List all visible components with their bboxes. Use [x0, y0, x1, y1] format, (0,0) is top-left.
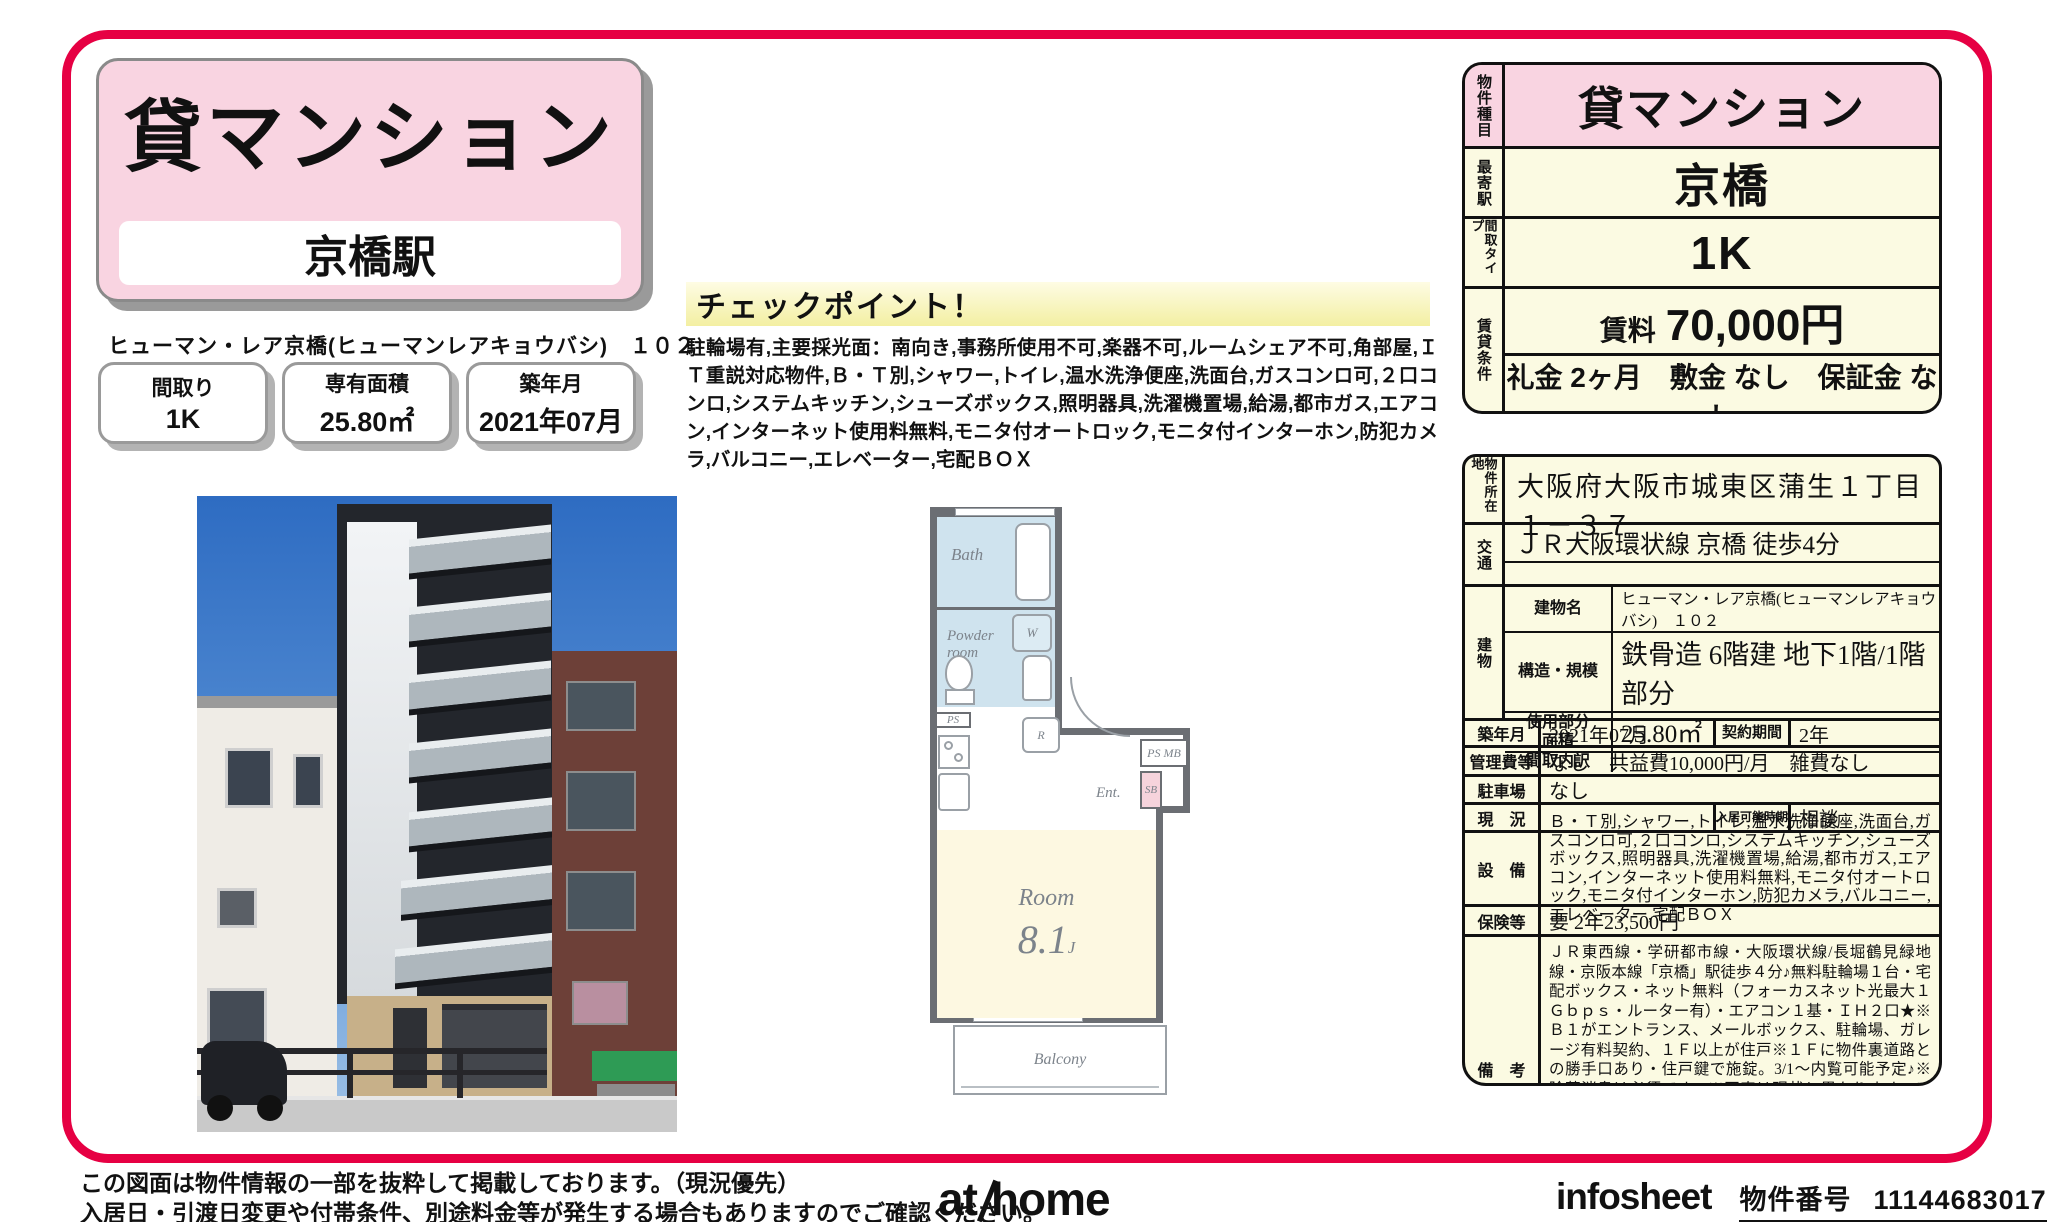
row-layout-type: 間取タイプ 1K: [1465, 219, 1939, 289]
row-notes: 備 考 ＪＲ東西線・学研都市線・大阪環状線/長堀鶴見緑地線・京阪本線「京橋」駅徒…: [1465, 937, 1939, 1086]
stat-box-layout: 間取り 1K: [98, 362, 268, 444]
plan-wall: [1156, 806, 1163, 1023]
title-card: 貸マンション 京橋駅: [96, 58, 644, 302]
ps-label: PS: [947, 714, 959, 726]
stat-box-area: 専有面積 25.80㎡: [282, 362, 452, 444]
stat-value: 1K: [166, 404, 201, 435]
stat-label: 築年月: [520, 368, 583, 398]
building-label: 建物: [1465, 587, 1505, 718]
infosheet-wordmark: infosheet: [1556, 1176, 1711, 1218]
layout-type-label: 間取タイプ: [1465, 219, 1505, 286]
athome-logo: athome: [938, 1172, 1110, 1222]
fence-post: [457, 1048, 463, 1098]
access-label: 交通: [1465, 525, 1505, 584]
management-fee-value: なし 共益費10,000円/月 雑費なし: [1541, 748, 1939, 774]
built-value: 2021年07月: [1541, 721, 1713, 745]
property-number-label: 物件番号: [1739, 1185, 1851, 1215]
infosheet-page: 貸マンション 京橋駅 ヒューマン・レア京橋(ヒューマンレアキョウバシ) １０２ …: [0, 0, 2056, 1222]
bathtub: [1015, 523, 1051, 601]
row-access: 交通 ＪＲ大阪環状線 京橋 徒歩4分: [1465, 525, 1939, 587]
station-value: 京橋: [1505, 150, 1939, 216]
rent-label: 賃料: [1600, 315, 1656, 346]
main-building-side-wall: [347, 522, 417, 1002]
property-type-label: 物件種目: [1465, 65, 1505, 146]
layout-type-value: 1K: [1505, 226, 1939, 280]
checkpoint-header: チェックポイント！: [686, 282, 1430, 326]
athome-logo-home: home: [991, 1172, 1110, 1222]
property-number-value: 11144683017: [1873, 1185, 2046, 1215]
bath-label: Bath: [951, 545, 983, 565]
access-line1: ＪＲ大阪環状線 京橋 徒歩4分: [1505, 525, 1939, 563]
current-status-label: 現 況: [1465, 805, 1541, 830]
room-size: 8.1: [1018, 917, 1068, 962]
building-name-label: 建物名: [1505, 587, 1613, 631]
row-address: 物件所在地 大阪府大阪市城東区蒲生１丁目 １－３７: [1465, 457, 1939, 525]
equipment-label: 設 備: [1465, 833, 1541, 904]
refrigerator-space: R: [1022, 717, 1060, 753]
access-line2: [1505, 563, 1939, 584]
shoe-box: SB: [1140, 771, 1162, 809]
plan-balcony: Balcony: [953, 1025, 1167, 1095]
structure-row: 構造・規模 鉄骨造 6階建 地下1階/1階部分: [1505, 633, 1939, 713]
property-category-title: 貸マンション: [99, 75, 641, 187]
room-label: Room: [1019, 885, 1075, 912]
rent-line: 賃料70,000円: [1505, 289, 1939, 353]
stat-label: 専有面積: [325, 368, 409, 398]
building-name-heading: ヒューマン・レア京橋(ヒューマンレアキョウバシ) １０２: [108, 330, 708, 360]
notes-label: 備 考: [1465, 937, 1541, 1086]
row-built: 築年月 2021年07月 契約期間 2年: [1465, 721, 1939, 748]
plan-main-room: Room 8.1J: [937, 830, 1156, 1018]
disclaimer-line2: 入居日・引渡日変更や付帯条件、別途料金等が発生する場合もありますのでご確認くださ…: [80, 1198, 1046, 1222]
closet-w: W: [1012, 614, 1052, 652]
notes-value: ＪＲ東西線・学研都市線・大阪環状線/長堀鶴見緑地線・京阪本線「京橋」駅徒歩４分♪…: [1541, 937, 1939, 1086]
fence-post: [347, 1048, 353, 1098]
row-property-type: 物件種目 貸マンション: [1465, 65, 1939, 149]
stat-boxes: 間取り 1K 専有面積 25.80㎡ 築年月 2021年07月: [98, 362, 636, 444]
plan-wall: [1055, 507, 1062, 735]
structure-value: 鉄骨造 6階建 地下1階/1階部分: [1613, 633, 1939, 711]
plan-window: [955, 508, 1055, 516]
row-station: 最寄駅 京橋: [1465, 149, 1939, 219]
address-label: 物件所在地: [1465, 457, 1505, 522]
row-insurance: 保険等 要 2年23,500円: [1465, 907, 1939, 937]
plan-wall: [930, 507, 937, 1023]
psmb-label: PS MB: [1147, 746, 1181, 761]
built-label: 築年月: [1465, 721, 1541, 745]
stat-box-built: 築年月 2021年07月: [466, 362, 636, 444]
insurance-value: 要 2年23,500円: [1541, 907, 1939, 934]
athome-logo-at: at: [938, 1172, 977, 1222]
stat-label: 間取り: [152, 372, 215, 402]
rental-terms-label: 賃貸条件: [1465, 289, 1505, 411]
row-equipment: 設 備 Ｂ・Ｔ別,シャワー,トイレ,温水洗浄便座,洗面台,ガスコンロ可,２口コン…: [1465, 833, 1939, 907]
row-management-fee: 管理費等 なし 共益費10,000円/月 雑費なし: [1465, 748, 1939, 777]
station-label: 最寄駅: [1465, 149, 1505, 216]
shop-awning: [592, 1051, 677, 1081]
motorcycle: [201, 1041, 287, 1105]
contract-value: 2年: [1791, 721, 1939, 745]
entrance-label: Ent.: [1096, 785, 1121, 802]
closet-label: W: [1027, 625, 1038, 641]
footer-disclaimer: この図面は物件情報の一部を抜粋して掲載しております。（現況優先） 入居日・引渡日…: [80, 1168, 1046, 1222]
building-photo: [197, 496, 677, 1132]
equipment-value: Ｂ・Ｔ別,シャワー,トイレ,温水洗浄便座,洗面台,ガスコンロ可,２口コンロ,シス…: [1541, 833, 1939, 904]
rent-value: 70,000円: [1666, 301, 1845, 350]
room-size-unit: J: [1068, 938, 1076, 957]
address-value: 大阪府大阪市城東区蒲生１丁目 １－３７: [1505, 457, 1939, 522]
parking-value: なし: [1541, 777, 1939, 802]
structure-label: 構造・規模: [1505, 633, 1613, 711]
summary-table: 物件種目 貸マンション 最寄駅 京橋 間取タイプ 1K 賃貸条件 賃料70,00…: [1462, 62, 1942, 414]
insurance-label: 保険等: [1465, 907, 1541, 934]
fees-value: 礼金 2ヶ月 敷金 なし 保証金 なし: [1505, 356, 1939, 414]
parking-label: 駐車場: [1465, 777, 1541, 802]
property-type-value: 貸マンション: [1505, 73, 1939, 139]
row-building: 建物 建物名 ヒューマン・レア京橋(ヒューマンレアキョウバシ) １０２ 構造・規…: [1465, 587, 1939, 721]
station-badge-label: 京橋駅: [304, 221, 436, 285]
contract-label: 契約期間: [1713, 721, 1791, 745]
pipe-space: PS: [935, 712, 971, 728]
row-rental-terms: 賃貸条件 賃料70,000円 礼金 2ヶ月 敷金 なし 保証金 なし: [1465, 289, 1939, 411]
station-badge: 京橋駅: [119, 221, 621, 285]
management-fee-label: 管理費等: [1465, 748, 1541, 774]
disclaimer-line1: この図面は物件情報の一部を抜粋して掲載しております。（現況優先）: [80, 1168, 1046, 1198]
sb-label: SB: [1145, 784, 1157, 796]
floor-plan: Bath Powder room W PS R Ent. PS MB SB Ro…: [918, 503, 1206, 1123]
building-name-row: 建物名 ヒューマン・レア京橋(ヒューマンレアキョウバシ) １０２: [1505, 587, 1939, 633]
building-name-value: ヒューマン・レア京橋(ヒューマンレアキョウバシ) １０２: [1613, 587, 1939, 631]
toilet-icon: [945, 655, 973, 691]
infosheet-block: infosheet 物件番号11144683017: [1556, 1176, 2047, 1222]
stat-value: 25.80㎡: [320, 400, 415, 439]
balcony-label: Balcony: [1034, 1051, 1086, 1069]
row-parking: 駐車場 なし: [1465, 777, 1939, 805]
detail-table: 物件所在地 大阪府大阪市城東区蒲生１丁目 １－３７ 交通 ＪＲ大阪環状線 京橋 …: [1462, 454, 1942, 1086]
stove-icon: [938, 735, 970, 769]
property-number: 物件番号11144683017: [1739, 1178, 2046, 1222]
washing-machine-icon: [1022, 655, 1052, 701]
fridge-label: R: [1037, 728, 1044, 743]
sink-icon: [938, 773, 970, 811]
checkpoint-body: 駐輪場有,主要採光面：南向き,事務所使用不可,楽器不可,ルームシェア不可,角部屋…: [686, 334, 1438, 452]
ps-mb-box: PS MB: [1140, 739, 1188, 767]
stat-value: 2021年07月: [479, 400, 623, 439]
